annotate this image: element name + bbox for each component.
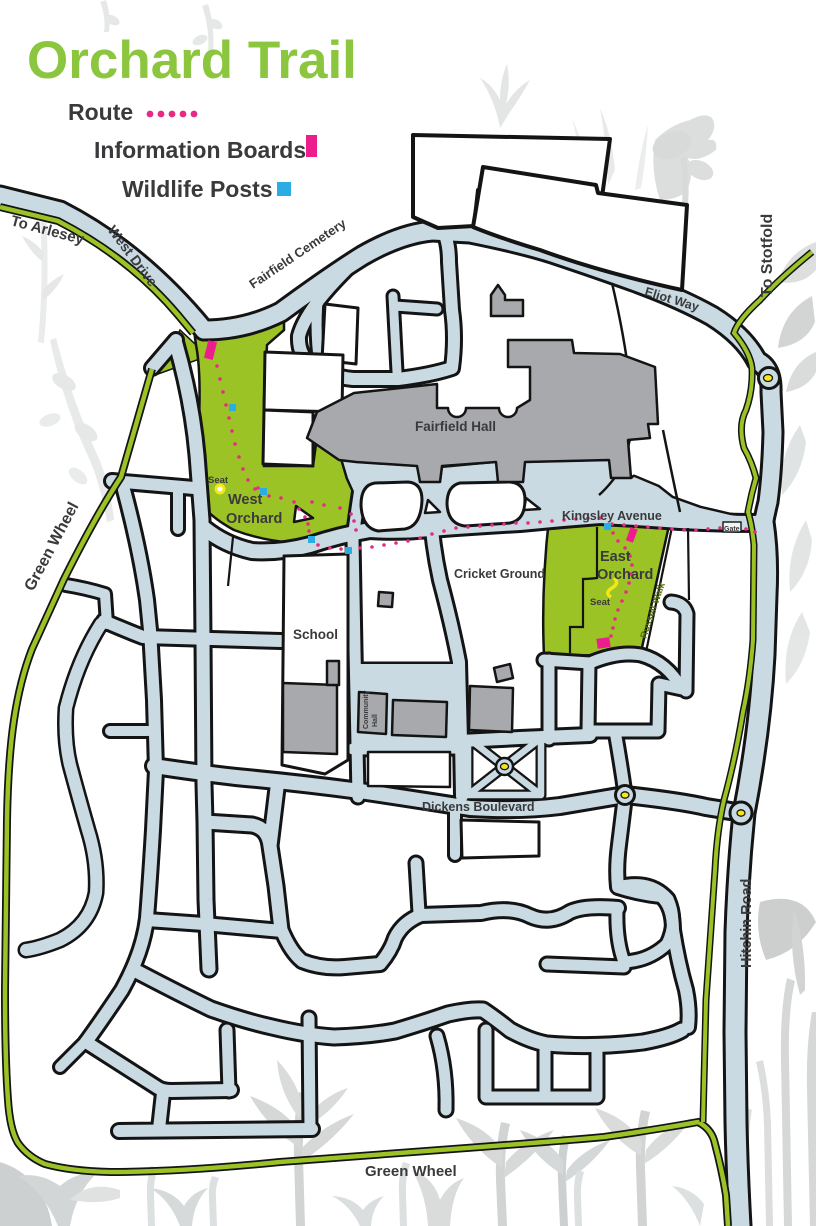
svg-text:Seat: Seat	[208, 475, 229, 486]
svg-text:Route: Route	[68, 99, 133, 125]
svg-text:West: West	[228, 492, 263, 508]
svg-text:Dickens Boulevard: Dickens Boulevard	[422, 800, 535, 814]
svg-text:Gate: Gate	[724, 526, 740, 533]
svg-text:Cricket Ground: Cricket Ground	[454, 567, 545, 581]
svg-text:To Stotfold: To Stotfold	[759, 214, 776, 297]
svg-text:Kingsley Avenue: Kingsley Avenue	[562, 509, 662, 523]
svg-text:Orchard Trail: Orchard Trail	[27, 31, 357, 90]
svg-text:Hall: Hall	[372, 714, 379, 727]
svg-text:Hitchin Road: Hitchin Road	[739, 879, 755, 968]
svg-text:Wildlife Posts: Wildlife Posts	[122, 176, 273, 202]
svg-text:Community: Community	[363, 690, 370, 729]
svg-text:Seat: Seat	[590, 597, 611, 608]
svg-text:Orchard: Orchard	[597, 567, 653, 583]
svg-text:Fairfield Hall: Fairfield Hall	[415, 419, 496, 434]
svg-text:East: East	[600, 549, 631, 565]
svg-text:Green Wheel: Green Wheel	[365, 1163, 457, 1180]
svg-text:Information Boards: Information Boards	[94, 137, 306, 163]
svg-text:School: School	[293, 627, 338, 642]
svg-text:Orchard: Orchard	[226, 511, 282, 527]
